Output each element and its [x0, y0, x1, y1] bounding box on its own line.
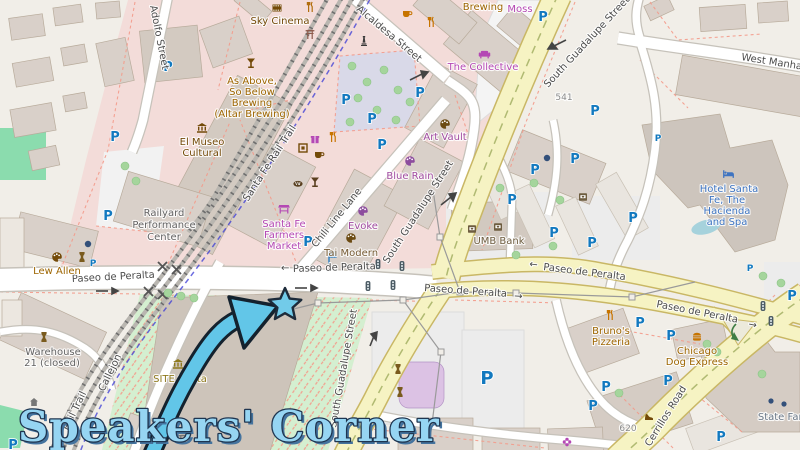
parking-icon: P	[655, 134, 662, 144]
parking-icon: P	[110, 130, 120, 145]
parking-icon: P	[530, 163, 540, 178]
parking-icon: P	[635, 316, 645, 331]
parking-icon: P	[588, 399, 598, 414]
annotation-title-text: Speakers' Corner	[18, 402, 440, 450]
gift-shop-icon	[311, 136, 319, 143]
traffic-signal-icon	[769, 316, 774, 326]
parking-icon: P	[549, 226, 559, 241]
parking-icon: P	[341, 93, 351, 108]
map-svg[interactable]: P P P P P P P P P P P P P P P P P P P P …	[0, 0, 800, 450]
poi-label-chicago-dog: Dog Express	[666, 357, 728, 368]
poi-label-altar-brewing: As Above,	[227, 76, 277, 87]
parking-icon: P	[103, 209, 113, 224]
parking-icon: P	[367, 112, 377, 127]
poi-label-state-farm: State Farm	[758, 412, 800, 423]
parking-icon: P	[666, 329, 676, 344]
parking-icon: P	[8, 438, 18, 450]
poi-label-brunos: Pizzeria	[592, 337, 630, 348]
poi-label-tai-modern: Tai Modern	[323, 248, 378, 259]
parking-icon: P	[587, 236, 597, 251]
poi-label-art-vault: Art Vault	[423, 132, 466, 143]
poi-label-hotel: and Spa	[707, 217, 748, 228]
poi-label-el-museo: Cultural	[182, 148, 221, 159]
traffic-signal-icon	[376, 259, 381, 269]
poi-label-umb-bank: UMB Bank	[473, 236, 524, 247]
arrow-left-glyph: ←	[281, 263, 289, 274]
poi-label-warehouse21: Warehouse	[25, 347, 81, 358]
parking-icon: P	[663, 374, 673, 389]
poi-label-hotel: Hotel Santa	[700, 184, 759, 195]
parking-icon: P	[747, 264, 754, 274]
atm-icon	[579, 193, 587, 201]
parking-icon: P	[415, 86, 425, 101]
traffic-signal-icon	[391, 280, 396, 290]
atm-icon	[494, 223, 502, 231]
bakery-icon	[293, 181, 302, 187]
poi-label-moss: Moss	[507, 4, 532, 15]
poi-label-brunos: Bruno's	[592, 326, 630, 337]
poi-label-sky-cinema: Sky Cinema	[251, 16, 310, 27]
poi-label-el-museo: El Museo	[180, 137, 225, 148]
poi-label-railyard-pc: Center	[147, 232, 182, 243]
arrow-right-glyph: →	[514, 291, 523, 303]
poi-label-altar-brewing: (Altar Brewing)	[214, 109, 289, 120]
annotation-title: Speakers' Corner Speakers' Corner	[18, 402, 443, 450]
arrow-left-glyph: ←	[529, 259, 539, 271]
map-canvas[interactable]: P P P P P P P P P P P P P P P P P P P P …	[0, 0, 800, 450]
parking-icon: P	[480, 368, 493, 389]
parking-icon: P	[570, 152, 580, 167]
parking-icon: P	[601, 380, 611, 395]
poi-label-farmers-market: Farmers	[264, 230, 304, 241]
poi-label-brewing: Brewing	[463, 2, 504, 13]
atm-icon	[468, 225, 476, 233]
poi-label-collective: The Collective	[447, 62, 519, 73]
parking-icon: P	[590, 104, 600, 119]
housenumber-541: 541	[555, 93, 572, 103]
parking-icon: P	[716, 430, 726, 445]
housenumber-620: 620	[619, 424, 636, 434]
cinema-icon	[273, 5, 282, 12]
poi-label-railyard-pc: Performance	[132, 220, 195, 231]
parking-icon: P	[507, 193, 517, 208]
poi-label-farmers-market: Market	[267, 241, 301, 252]
traffic-signal-icon	[366, 281, 371, 291]
parking-icon: P	[787, 289, 797, 304]
poi-label-hotel: Hacienda	[704, 206, 751, 217]
poi-label-farmers-market: Santa Fe	[262, 219, 305, 230]
parking-icon: P	[377, 138, 387, 153]
poi-label-altar-brewing: So Below	[229, 87, 275, 98]
parking-icon: P	[628, 211, 638, 226]
poi-label-altar-brewing: Brewing	[232, 98, 273, 109]
parking-icon: P	[538, 10, 548, 25]
parking-icon: P	[90, 259, 97, 269]
poi-label-evoke: Evoke	[348, 221, 378, 232]
poi-label-hotel: Fe, The	[709, 195, 745, 206]
fast-food-icon	[693, 333, 701, 341]
poi-label-blue-rain: Blue Rain	[386, 171, 433, 182]
traffic-signal-icon	[400, 261, 405, 271]
traffic-signal-icon	[761, 301, 766, 311]
poi-label-railyard-pc: Railyard	[144, 208, 185, 219]
poi-label-lew-allen: Lew Allen	[33, 266, 81, 277]
poi-label-warehouse21: 21 (closed)	[24, 358, 80, 369]
poi-label-chicago-dog: Chicago	[677, 346, 717, 357]
